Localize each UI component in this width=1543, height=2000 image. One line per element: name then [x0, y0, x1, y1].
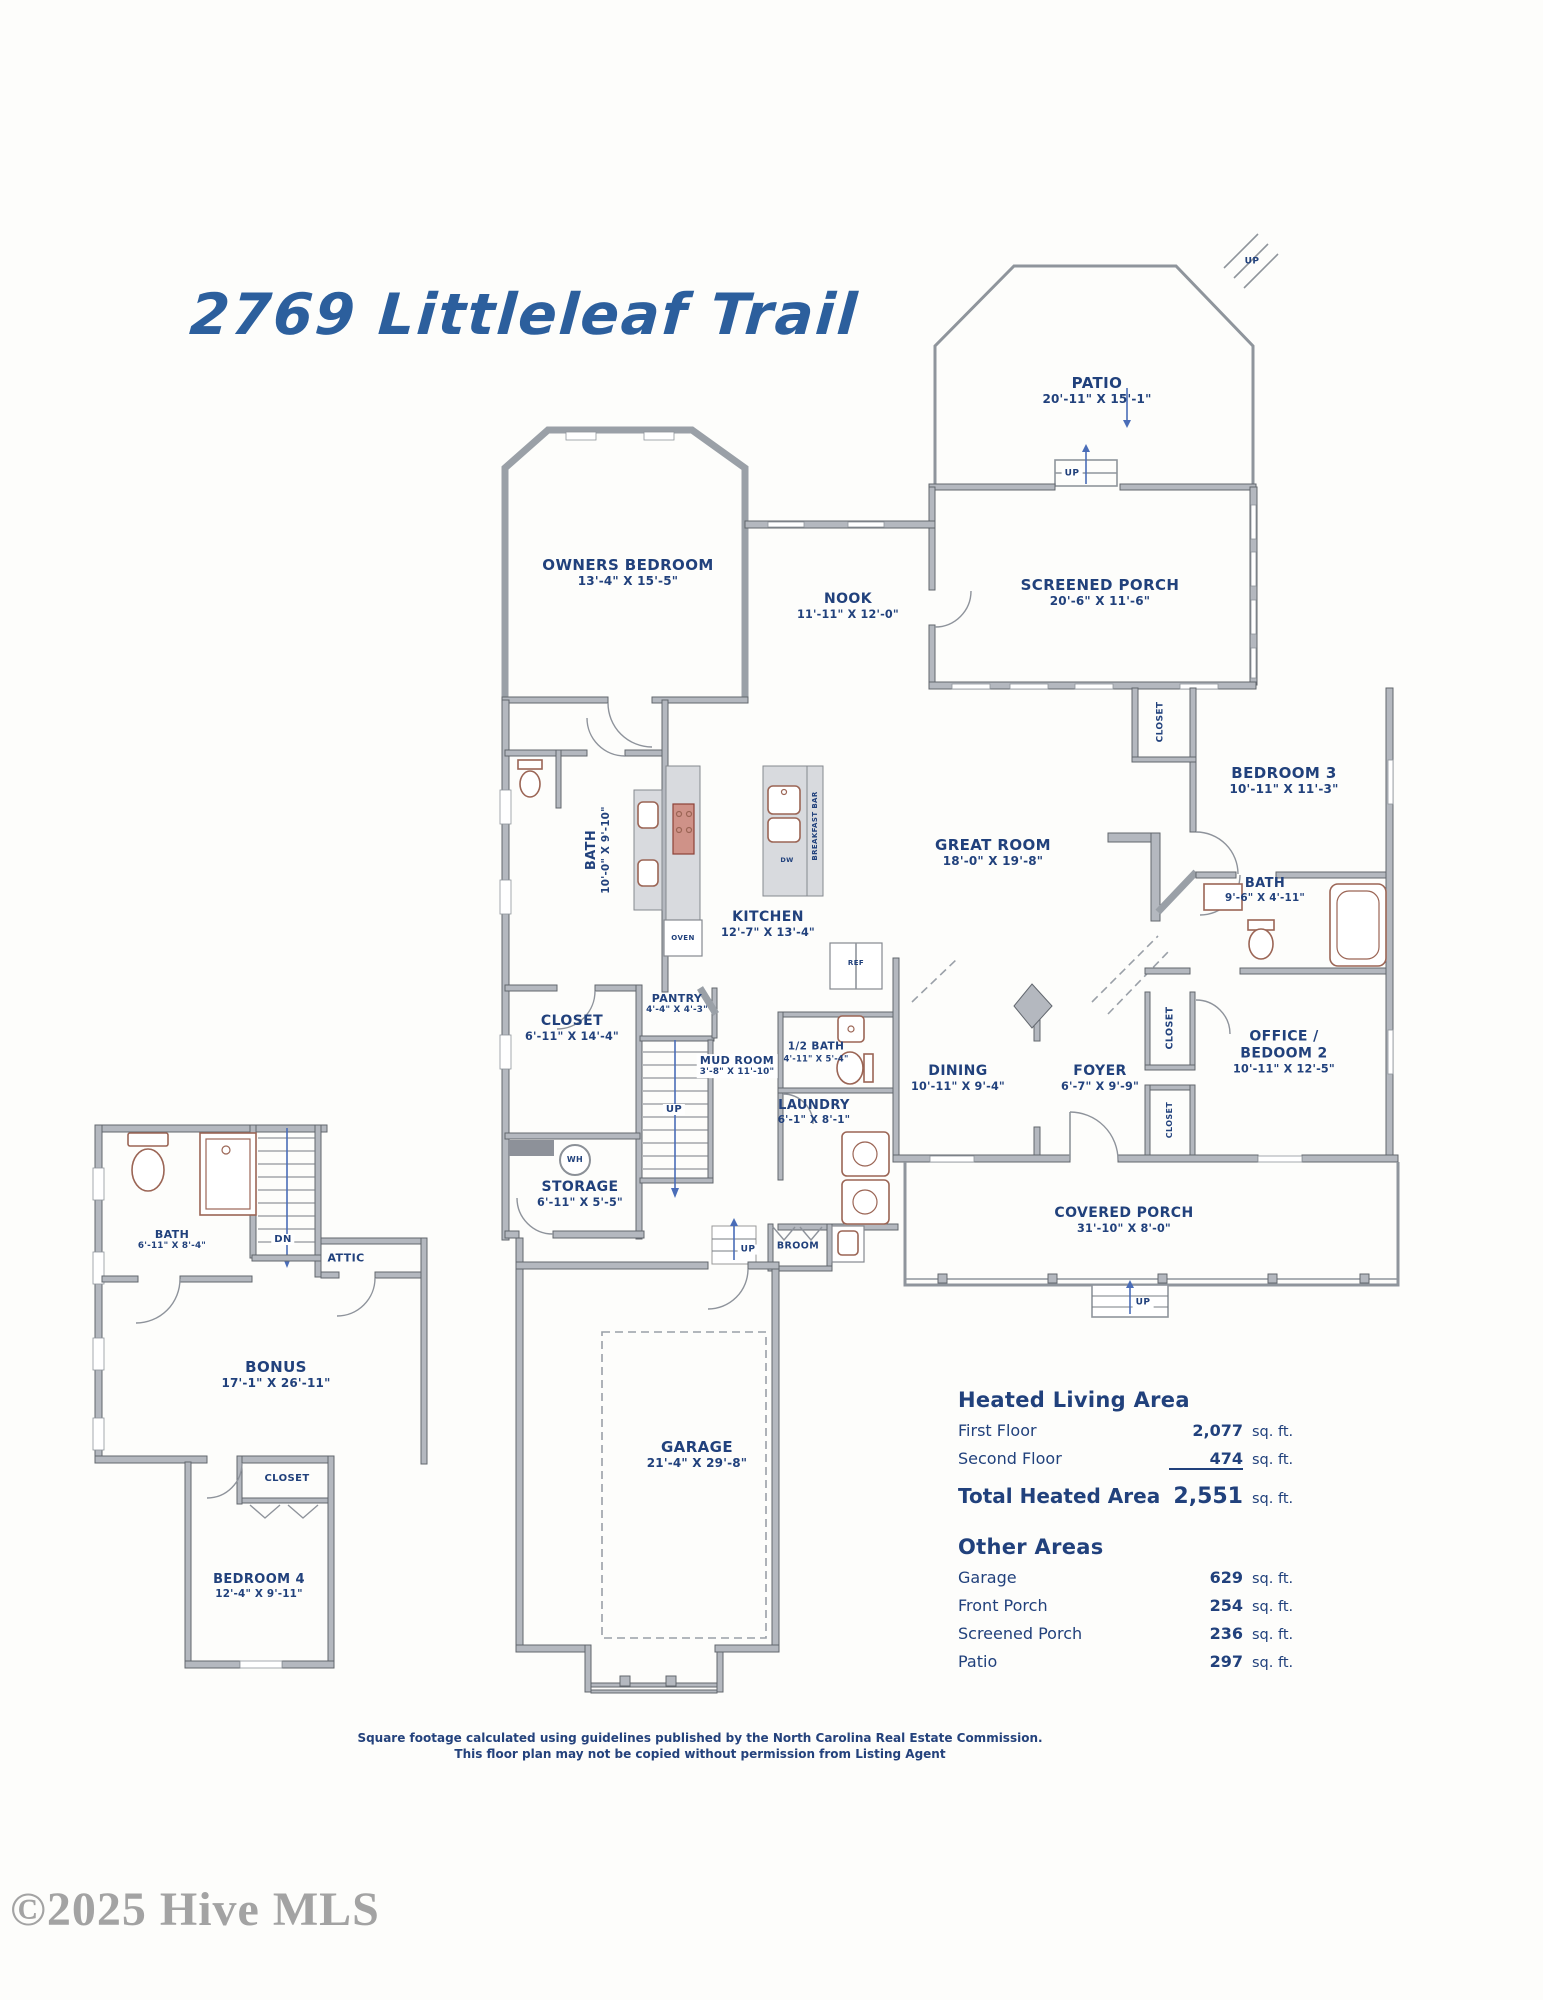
- room-label-bath-upstairs: BATH 6'-11" X 8'-4": [138, 1228, 206, 1252]
- room-label-bedroom3: BEDROOM 3 10'-11" X 11'-3": [1229, 764, 1338, 796]
- room-label-foyer: FOYER 6'-7" X 9'-9": [1061, 1063, 1139, 1093]
- closet-label-foyer: CLOSET: [1164, 1007, 1175, 1050]
- room-label-great-room: GREAT ROOM 18'-0" X 19'-8": [935, 836, 1051, 868]
- disclaimer: Square footage calculated using guidelin…: [357, 1730, 1042, 1762]
- heated-area-title: Heated Living Area: [958, 1388, 1310, 1412]
- room-label-half-bath: 1/2 BATH 4'-11" X 5'-4": [783, 1041, 848, 1064]
- room-label-covered-porch: COVERED PORCH 31'-10" X 8'-0": [1054, 1205, 1193, 1235]
- area-row-garage: Garage 629 sq. ft.: [958, 1568, 1310, 1587]
- room-label-dining: DINING 10'-11" X 9'-4": [911, 1063, 1005, 1093]
- floor-plan-page: 2769 Littleleaf Trail PATIO 20'-11" X 15…: [0, 0, 1543, 2000]
- area-row-patio: Patio 297 sq. ft.: [958, 1652, 1310, 1671]
- disclaimer-line1: Square footage calculated using guidelin…: [357, 1730, 1042, 1746]
- closet-label-bedroom3: CLOSET: [1156, 702, 1167, 743]
- area-row-second-floor: Second Floor 474 sq. ft.: [958, 1449, 1310, 1470]
- area-row-screened-porch: Screened Porch 236 sq. ft.: [958, 1624, 1310, 1643]
- room-label-owners-bedroom: OWNERS BEDROOM 13'-4" X 15'-5": [542, 556, 713, 588]
- back-steps-up-label: UP: [738, 1245, 759, 1256]
- great-room-features: [1108, 833, 1196, 921]
- attic-label: ATTIC: [327, 1251, 364, 1264]
- room-label-patio: PATIO 20'-11" X 15'-1": [1042, 374, 1151, 406]
- front-steps-up-label: UP: [1133, 1298, 1154, 1309]
- closet-label-second-floor: CLOSET: [264, 1473, 309, 1485]
- area-row-front-porch: Front Porch 254 sq. ft.: [958, 1596, 1310, 1615]
- area-summary: Heated Living Area First Floor 2,077 sq.…: [958, 1388, 1310, 1671]
- office-closet-walls: [1145, 992, 1230, 1157]
- owners-bedroom-walls: [502, 430, 935, 747]
- room-label-bath-hall: BATH 9'-6" X 4'-11": [1225, 876, 1305, 904]
- stairs-dn-label: DN: [271, 1234, 294, 1246]
- broom-label: BROOM: [777, 1240, 819, 1251]
- oven-label: OVEN: [671, 934, 694, 942]
- room-label-nook: NOOK 11'-11" X 12'-0": [797, 591, 899, 621]
- dining-foyer-walls: [893, 936, 1170, 1162]
- water-heater-label: WH: [567, 1155, 583, 1165]
- room-label-mud-room: MUD ROOM 3'-8" X 11'-10": [697, 1054, 778, 1078]
- room-label-kitchen: KITCHEN 12'-7" X 13'-4": [721, 909, 815, 939]
- room-label-garage: GARAGE 21'-4" X 29'-8": [647, 1438, 748, 1470]
- dishwasher-label: DW: [780, 857, 793, 865]
- mls-watermark: ©2025 Hive MLS: [10, 1882, 380, 1937]
- area-row-total: Total Heated Area 2,551 sq. ft.: [958, 1484, 1310, 1509]
- other-areas-title: Other Areas: [958, 1535, 1310, 1559]
- bedroom3-bath-walls: [1132, 688, 1393, 1162]
- plan-title: 2769 Littleleaf Trail: [188, 282, 861, 348]
- room-label-closet-owners: CLOSET 6'-11" X 14'-4": [525, 1013, 619, 1043]
- covered-porch-outline: [905, 1162, 1398, 1317]
- room-label-office-bedroom2: OFFICE / BEDOOM 2 10'-11" X 12'-5": [1233, 1028, 1335, 1075]
- room-label-pantry: PANTRY 4'-4" X 4'-3": [646, 992, 708, 1016]
- room-label-screened-porch: SCREENED PORCH 20'-6" X 11'-6": [1021, 576, 1180, 608]
- area-row-first-floor: First Floor 2,077 sq. ft.: [958, 1421, 1310, 1440]
- room-label-laundry: LAUNDRY 6'-1" X 8'-1": [778, 1098, 851, 1126]
- closet-label-foyer-2: CLOSET: [1165, 1102, 1175, 1139]
- second-floor-bath-fixtures: [128, 1133, 256, 1215]
- room-label-owners-bath: BATH 10'-0" X 9'-10": [584, 806, 612, 893]
- patio-outline: [935, 234, 1278, 486]
- room-label-bedroom4: BEDROOM 4 12'-4" X 9'-11": [213, 1572, 305, 1600]
- kitchen-fixtures: [664, 766, 882, 989]
- refrigerator-label: REF: [848, 959, 864, 967]
- stairs-up-label: UP: [663, 1104, 685, 1116]
- room-label-storage: STORAGE 6'-11" X 5'-5": [537, 1179, 623, 1209]
- porch-steps-up-label: UP: [1062, 469, 1083, 480]
- laundry-fixtures: [842, 1132, 889, 1224]
- room-label-bonus: BONUS 17'-1" X 26'-11": [221, 1358, 330, 1390]
- left-exterior-wall: [500, 700, 511, 1240]
- breakfast-bar-label: BREAKFAST BAR: [811, 791, 819, 860]
- patio-steps-up-label: UP: [1245, 257, 1260, 268]
- disclaimer-line2: This floor plan may not be copied withou…: [357, 1746, 1042, 1762]
